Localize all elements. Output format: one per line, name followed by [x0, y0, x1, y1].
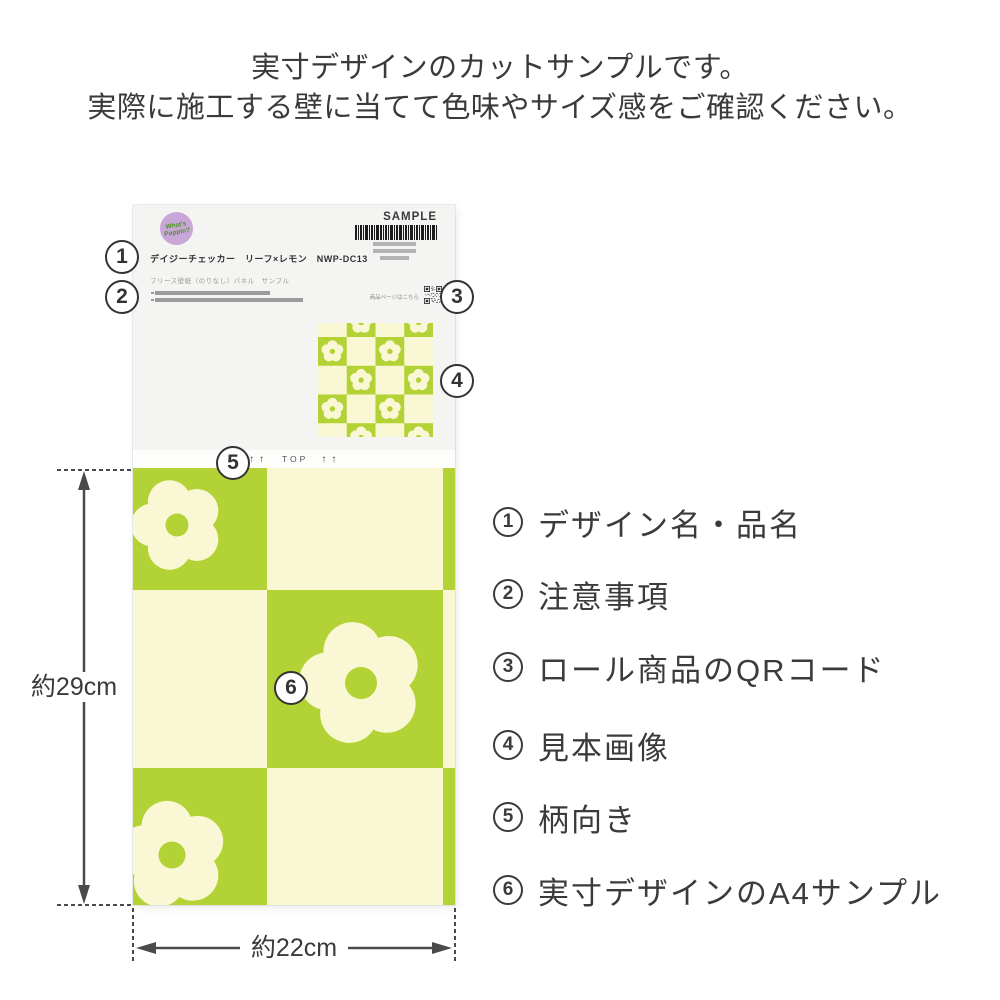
sample-thumbnail-image — [318, 323, 433, 437]
legend-number: 5 — [493, 802, 523, 832]
notice-bullet — [151, 299, 154, 302]
width-dimension-label: 約22cm — [240, 933, 348, 963]
legend-item-a4-sample: 6 実寸デザインのA4サンプル — [493, 873, 942, 907]
brand-logo: What's Poppin? — [157, 209, 195, 247]
heading-line-2: 実際に施工する壁に当てて色味やサイズ感をご確認ください。 — [0, 88, 1000, 128]
barcode — [355, 225, 437, 240]
up-arrows-icon: ↑↑ — [249, 454, 269, 465]
callout-4: 4 — [440, 364, 474, 398]
legend-label: 注意事項 — [538, 572, 670, 617]
paper-label-area: What's Poppin? SAMPLE デイジーチェッカー リーフ×レモン … — [133, 205, 455, 450]
barcode-number-bar — [373, 249, 416, 253]
page: 実寸デザインのカットサンプルです。 実際に施工する壁に当てて色味やサイズ感をご確… — [0, 0, 1000, 1000]
legend-label: 実寸デザインのA4サンプル — [538, 868, 942, 913]
callout-5: 5 — [216, 446, 250, 480]
legend-item-qr-code: 3 ロール商品のQRコード — [493, 650, 886, 684]
notice-bullet — [151, 292, 154, 295]
legend-item-design-name: 1 デザイン名・品名 — [493, 505, 802, 539]
barcode-number-bar — [373, 242, 416, 246]
sample-paper: What's Poppin? SAMPLE デイジーチェッカー リーフ×レモン … — [133, 205, 455, 905]
legend-label: 見本画像 — [538, 723, 670, 768]
top-direction-label: TOP — [282, 454, 308, 464]
legend-item-sample-image: 4 見本画像 — [493, 728, 670, 762]
heading-line-1: 実寸デザインのカットサンプルです。 — [0, 48, 1000, 88]
height-dimension-label: 約29cm — [26, 672, 122, 702]
legend-label: デザイン名・品名 — [538, 500, 802, 545]
legend-number: 6 — [493, 875, 523, 905]
up-arrows-icon: ↑↑ — [321, 454, 341, 465]
page-heading: 実寸デザインのカットサンプルです。 実際に施工する壁に当てて色味やサイズ感をご確… — [0, 48, 1000, 128]
product-title: デイジーチェッカー リーフ×レモン NWP-DC13 — [150, 252, 368, 265]
notice-text-bar — [155, 291, 270, 295]
barcode-number-bar — [380, 256, 409, 260]
legend: 1 デザイン名・品名 2 注意事項 3 ロール商品のQRコード 4 見本画像 5… — [493, 505, 983, 925]
callout-2: 2 — [105, 280, 139, 314]
sample-mark-label: SAMPLE — [383, 211, 437, 223]
callout-1: 1 — [105, 240, 139, 274]
legend-number: 2 — [493, 579, 523, 609]
legend-item-notes: 2 注意事項 — [493, 577, 670, 611]
legend-label: 柄向き — [538, 795, 637, 840]
legend-number: 1 — [493, 507, 523, 537]
callout-3: 3 — [440, 280, 474, 314]
notice-text-bar — [155, 298, 303, 302]
legend-label: ロール商品のQRコード — [538, 645, 886, 690]
pattern-orientation-strip: ↑↑ TOP ↑↑ — [133, 450, 455, 468]
legend-number: 4 — [493, 730, 523, 760]
callout-6: 6 — [274, 671, 308, 705]
legend-number: 3 — [493, 652, 523, 682]
legend-item-pattern-direction: 5 柄向き — [493, 800, 637, 834]
qr-caption: 商品ページはこちら — [361, 293, 419, 301]
product-subtitle: フリース壁紙（のりなし）パネル サンプル — [150, 275, 289, 285]
